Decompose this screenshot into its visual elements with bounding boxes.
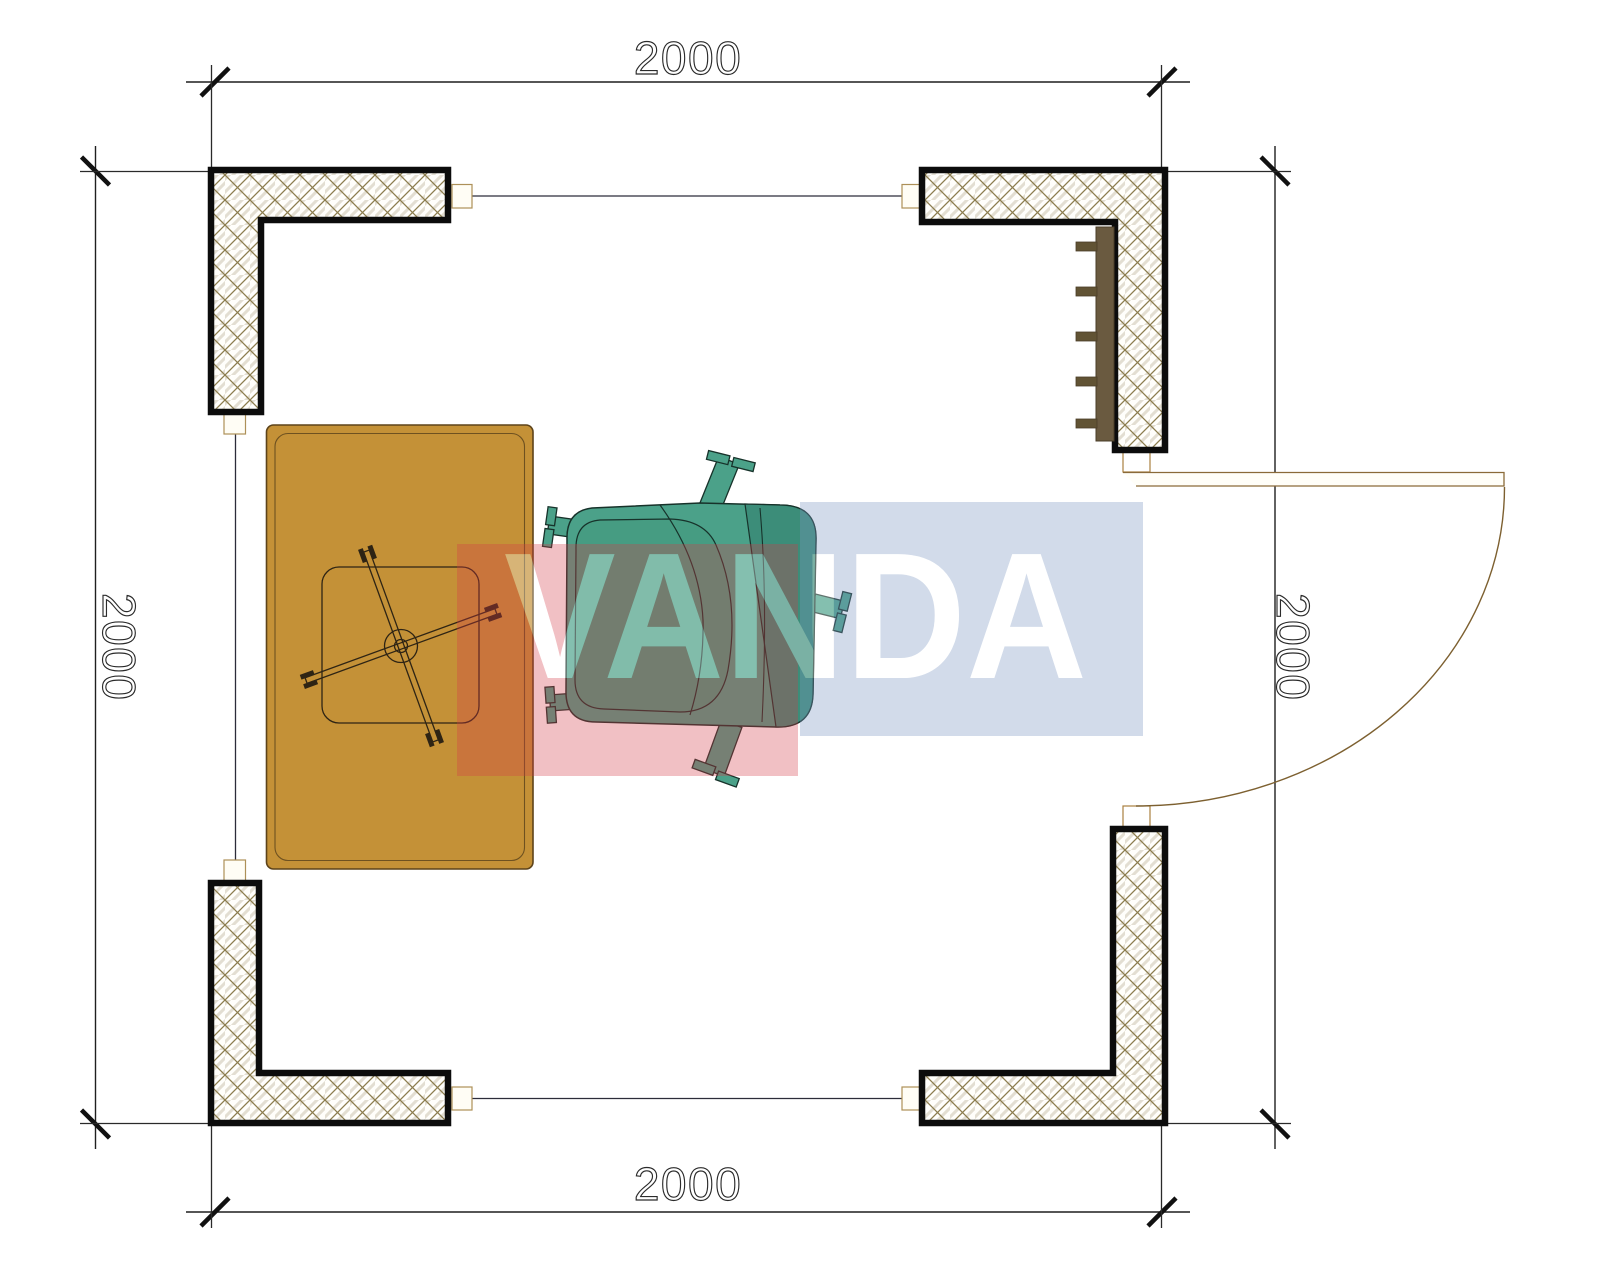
svg-text:2000: 2000 bbox=[1267, 593, 1319, 701]
svg-text:2000: 2000 bbox=[93, 593, 145, 701]
svg-text:2000: 2000 bbox=[634, 32, 742, 84]
svg-text:2000: 2000 bbox=[634, 1158, 742, 1210]
svg-text:VANDA: VANDA bbox=[504, 516, 1087, 717]
